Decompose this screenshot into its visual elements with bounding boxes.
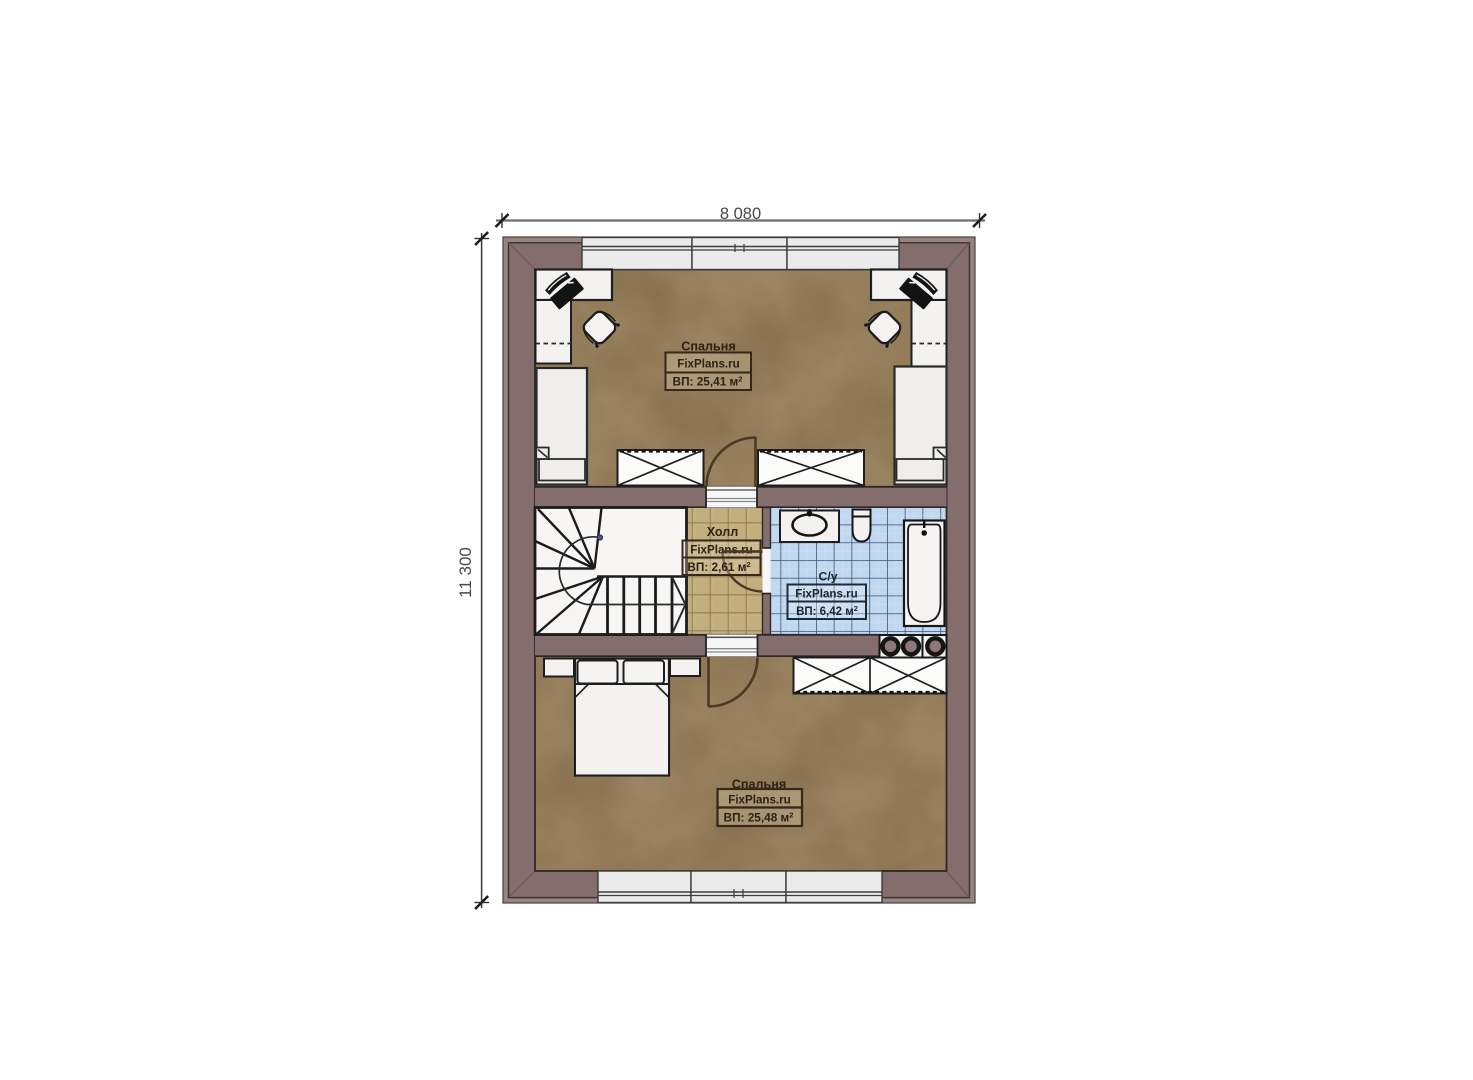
svg-text:8 080: 8 080 [720, 205, 761, 223]
svg-text:Спальня: Спальня [681, 340, 735, 354]
svg-text:FixPlans.ru: FixPlans.ru [677, 358, 740, 371]
svg-text:С/у: С/у [819, 570, 838, 584]
svg-text:FixPlans.ru: FixPlans.ru [728, 794, 791, 807]
svg-text:FixPlans.ru: FixPlans.ru [795, 588, 858, 601]
svg-text:FixPlans.ru: FixPlans.ru [690, 544, 753, 557]
svg-text:11 300: 11 300 [456, 547, 475, 598]
svg-text:Холл: Холл [707, 525, 739, 539]
svg-text:ВП: 25,41 м2: ВП: 25,41 м2 [673, 375, 743, 389]
svg-text:ВП: 6,42 м2: ВП: 6,42 м2 [796, 604, 858, 618]
svg-text:ВП: 2,61 м2: ВП: 2,61 м2 [687, 560, 750, 574]
svg-text:ВП: 25,48 м2: ВП: 25,48 м2 [724, 811, 794, 825]
